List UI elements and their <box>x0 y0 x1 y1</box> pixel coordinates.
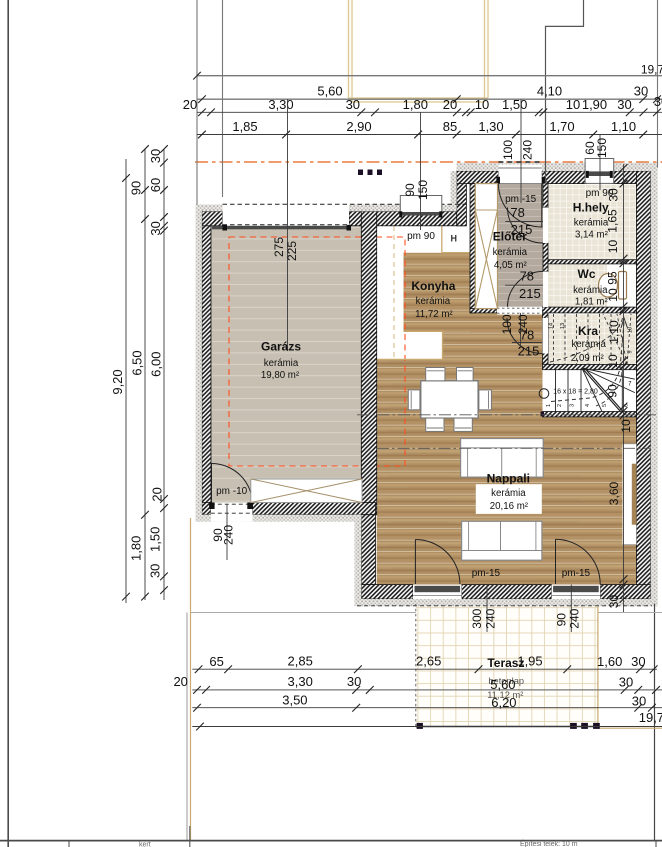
svg-text:2: 2 <box>557 404 563 407</box>
svg-text:10: 10 <box>606 354 620 368</box>
svg-text:30: 30 <box>631 654 645 669</box>
svg-text:1,80: 1,80 <box>403 97 428 112</box>
svg-text:4,05 m²: 4,05 m² <box>494 260 528 271</box>
svg-text:kerámia: kerámia <box>491 488 526 499</box>
svg-text:2,65: 2,65 <box>416 654 441 669</box>
svg-text:1,85: 1,85 <box>232 119 257 134</box>
svg-text:30: 30 <box>607 595 621 609</box>
svg-text:95: 95 <box>606 271 620 285</box>
svg-text:30: 30 <box>632 694 646 709</box>
svg-text:3: 3 <box>570 404 576 407</box>
svg-text:kerámia: kerámia <box>264 358 299 369</box>
svg-text:1,80: 1,80 <box>128 536 143 561</box>
svg-text:20,16 m²: 20,16 m² <box>490 501 529 512</box>
svg-text:kerámia: kerámia <box>574 218 609 229</box>
svg-text:1,60: 1,60 <box>597 654 622 669</box>
svg-text:pm 90: pm 90 <box>407 231 435 242</box>
svg-text:1,10: 1,10 <box>607 320 621 344</box>
svg-text:240: 240 <box>521 140 535 160</box>
svg-text:3,60: 3,60 <box>607 481 621 505</box>
svg-text:30: 30 <box>147 564 162 578</box>
svg-text:2,85: 2,85 <box>288 654 313 669</box>
svg-text:19,7: 19,7 <box>641 63 662 77</box>
svg-text:1,70: 1,70 <box>549 119 574 134</box>
svg-text:60: 60 <box>148 178 163 192</box>
svg-text:Előtér: Előtér <box>493 229 527 243</box>
svg-text:275: 275 <box>272 237 286 257</box>
svg-text:90: 90 <box>129 181 144 195</box>
svg-text:pm-15: pm-15 <box>472 568 501 579</box>
svg-text:100: 100 <box>501 140 515 160</box>
svg-text:240: 240 <box>568 608 582 628</box>
svg-text:Garázs: Garázs <box>261 340 301 354</box>
svg-text:30: 30 <box>346 97 360 112</box>
svg-text:300: 300 <box>470 608 484 628</box>
svg-text:6,50: 6,50 <box>130 350 145 375</box>
svg-text:78: 78 <box>520 328 534 343</box>
svg-text:3,14 m²: 3,14 m² <box>575 229 609 240</box>
svg-text:Terasz: Terasz <box>487 656 524 670</box>
svg-text:30: 30 <box>148 149 163 163</box>
svg-text:30: 30 <box>654 94 662 109</box>
svg-text:14: 14 <box>549 323 555 329</box>
svg-text:pm -15: pm -15 <box>505 194 537 205</box>
svg-text:kerámia: kerámia <box>571 339 606 350</box>
svg-text:10: 10 <box>606 240 620 254</box>
svg-text:pm -10: pm -10 <box>216 486 248 497</box>
svg-text:Wc: Wc <box>578 267 596 281</box>
svg-text:2,09 m²: 2,09 m² <box>571 353 605 364</box>
svg-text:240: 240 <box>222 525 236 545</box>
svg-text:1,81 m²: 1,81 m² <box>575 297 609 308</box>
svg-text:16 x 18 = 2,80: 16 x 18 = 2,80 <box>553 389 598 396</box>
svg-text:Nappali: Nappali <box>487 471 530 485</box>
svg-text:1,50: 1,50 <box>502 97 527 112</box>
svg-text:30: 30 <box>148 221 163 235</box>
svg-text:pm-15: pm-15 <box>562 568 591 579</box>
svg-text:Építési telek: 10 m: Építési telek: 10 m <box>520 839 578 847</box>
svg-text:2,90: 2,90 <box>346 119 371 134</box>
svg-text:5,60: 5,60 <box>317 84 342 99</box>
svg-text:Konyha: Konyha <box>411 279 455 293</box>
svg-text:6,00: 6,00 <box>149 352 164 377</box>
svg-text:215: 215 <box>519 286 541 301</box>
svg-text:20: 20 <box>183 97 197 112</box>
svg-text:100: 100 <box>500 314 514 334</box>
svg-text:90: 90 <box>606 384 620 398</box>
svg-text:1,50: 1,50 <box>147 527 162 552</box>
svg-text:4,10: 4,10 <box>537 84 562 99</box>
svg-text:1,90: 1,90 <box>582 97 607 112</box>
svg-text:10: 10 <box>606 288 620 302</box>
svg-text:3,50: 3,50 <box>282 693 307 708</box>
svg-text:9,20: 9,20 <box>110 369 125 394</box>
svg-text:kert: kert <box>139 842 151 847</box>
svg-text:150: 150 <box>595 138 609 158</box>
svg-text:20: 20 <box>150 487 165 501</box>
svg-text:4: 4 <box>585 404 591 407</box>
svg-text:1,10: 1,10 <box>611 119 636 134</box>
svg-text:11,72 m²: 11,72 m² <box>415 309 453 320</box>
svg-text:3,30: 3,30 <box>268 97 293 112</box>
svg-text:65: 65 <box>209 654 223 669</box>
svg-text:13: 13 <box>560 323 566 329</box>
svg-text:78: 78 <box>510 205 524 220</box>
svg-text:20: 20 <box>173 674 187 689</box>
svg-text:kerámia: kerámia <box>416 296 451 307</box>
svg-text:19,80 m²: 19,80 m² <box>261 370 300 381</box>
svg-text:kerámia: kerámia <box>493 247 528 258</box>
svg-text:H.hely: H.hely <box>573 201 609 215</box>
svg-text:90: 90 <box>403 183 417 197</box>
svg-text:kerámia: kerámia <box>573 285 608 296</box>
svg-text:Kra: Kra <box>578 324 598 338</box>
svg-text:5,60: 5,60 <box>490 677 515 692</box>
svg-text:240: 240 <box>483 608 497 628</box>
svg-text:30: 30 <box>617 97 631 112</box>
svg-text:10: 10 <box>475 97 489 112</box>
svg-text:150: 150 <box>416 180 430 200</box>
svg-text:6,20: 6,20 <box>491 695 516 710</box>
svg-text:pm 90: pm 90 <box>586 188 614 199</box>
svg-text:5: 5 <box>602 404 608 407</box>
svg-text:225: 225 <box>285 241 299 261</box>
svg-text:30: 30 <box>619 675 633 690</box>
svg-text:3,30: 3,30 <box>288 674 313 689</box>
svg-text:1: 1 <box>546 404 552 407</box>
svg-text:10: 10 <box>628 327 634 333</box>
svg-text:10: 10 <box>566 97 580 112</box>
svg-text:85: 85 <box>443 119 457 134</box>
svg-text:19,7: 19,7 <box>639 710 662 725</box>
svg-text:20: 20 <box>443 97 457 112</box>
svg-text:1,30: 1,30 <box>478 119 503 134</box>
svg-text:9: 9 <box>628 350 634 353</box>
svg-text:215: 215 <box>518 344 540 359</box>
svg-text:10: 10 <box>619 419 633 433</box>
svg-text:H: H <box>451 234 458 244</box>
svg-text:30: 30 <box>634 84 648 99</box>
svg-text:30: 30 <box>347 674 361 689</box>
